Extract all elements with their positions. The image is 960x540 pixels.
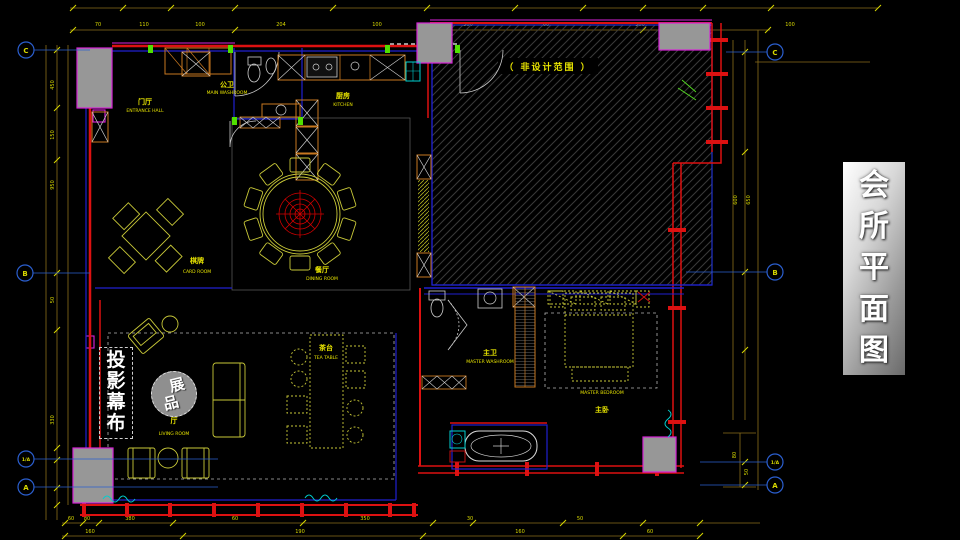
svg-text:50: 50 bbox=[577, 516, 583, 522]
label-card-zh: 棋牌 bbox=[190, 256, 204, 265]
plants bbox=[103, 410, 671, 502]
svg-text:80: 80 bbox=[732, 452, 738, 458]
banner-char: 所 bbox=[859, 208, 889, 246]
label-card-en: CARD ROOM bbox=[183, 269, 211, 275]
bathtub-room bbox=[450, 431, 537, 462]
svg-text:950: 950 bbox=[50, 180, 56, 190]
grid-marker-left-a: A bbox=[23, 484, 29, 492]
svg-text:160: 160 bbox=[85, 529, 95, 535]
label-tea-en: TEA TABLE bbox=[313, 355, 338, 361]
projection-char: 投 bbox=[106, 350, 125, 371]
grid-marker-right-c: C bbox=[772, 49, 777, 57]
svg-text:110: 110 bbox=[139, 22, 149, 28]
label-living-en: LIVING ROOM bbox=[159, 431, 190, 437]
non-design-label: （ 非设计范围 ） bbox=[504, 61, 591, 73]
svg-text:100: 100 bbox=[195, 22, 205, 28]
label-entrance-en: ENTRANCE HALL bbox=[126, 108, 164, 114]
svg-text:350: 350 bbox=[360, 516, 370, 522]
banner-char: 会 bbox=[859, 167, 889, 205]
exhibit-char: 品 bbox=[162, 393, 180, 412]
label-mainwash-en: MAIN WASHROOM bbox=[207, 90, 248, 96]
label-masterbed-en: MASTER BEDROOM bbox=[580, 390, 624, 396]
svg-text:150: 150 bbox=[50, 130, 56, 140]
svg-text:600: 600 bbox=[733, 195, 739, 205]
grid-marker-left-1a: 1/A bbox=[22, 457, 31, 463]
svg-text:70: 70 bbox=[95, 22, 101, 28]
svg-text:190: 190 bbox=[295, 529, 305, 535]
label-tea-zh: 茶台 bbox=[318, 343, 333, 352]
cad-floorplan-slide: 70 110 100 204 100 300 60 300 100 450 15… bbox=[0, 0, 960, 540]
svg-text:650: 650 bbox=[746, 195, 752, 205]
svg-text:450: 450 bbox=[50, 80, 56, 90]
svg-text:30: 30 bbox=[467, 516, 473, 522]
label-dining-en: DINING ROOM bbox=[306, 276, 338, 282]
label-entrance-zh: 门厅 bbox=[138, 97, 152, 106]
label-masterwash-en: MASTER WASHROOM bbox=[466, 359, 514, 365]
projection-char: 布 bbox=[106, 413, 125, 434]
svg-text:160: 160 bbox=[515, 529, 525, 535]
label-masterwash-zh: 主卫 bbox=[483, 348, 497, 357]
label-kitchen-zh: 厨房 bbox=[336, 91, 350, 100]
floor-plan-drawing: 70 110 100 204 100 300 60 300 100 450 15… bbox=[0, 0, 960, 540]
banner-char: 平 bbox=[859, 249, 889, 287]
card-table bbox=[91, 181, 204, 294]
dining-chandelier bbox=[276, 190, 324, 238]
svg-text:60: 60 bbox=[68, 516, 74, 522]
svg-text:100: 100 bbox=[785, 22, 795, 28]
label-masterbed-zh: 主卧 bbox=[595, 405, 609, 414]
grid-marker-right-1a: 1/A bbox=[771, 460, 780, 466]
grid-marker-right-b: B bbox=[772, 269, 777, 277]
label-kitchen-en: KITCHEN bbox=[333, 102, 353, 108]
banner-char: 图 bbox=[859, 332, 889, 370]
projection-char: 影 bbox=[106, 371, 125, 392]
svg-text:204: 204 bbox=[276, 22, 286, 28]
svg-text:60: 60 bbox=[647, 529, 653, 535]
banner-char: 面 bbox=[859, 291, 889, 329]
master-washroom-fixtures bbox=[422, 287, 535, 389]
svg-text:50: 50 bbox=[744, 469, 750, 475]
svg-text:60: 60 bbox=[232, 516, 238, 522]
label-living-zh: 厅 bbox=[171, 417, 178, 425]
grid-marker-left-b: B bbox=[22, 270, 27, 278]
projection-screen-label: 投 影 幕 布 bbox=[104, 350, 128, 434]
page-title-banner: 会 所 平 面 图 bbox=[843, 162, 905, 375]
projection-char: 幕 bbox=[106, 392, 125, 413]
svg-text:50: 50 bbox=[50, 297, 56, 303]
svg-text:330: 330 bbox=[50, 415, 56, 425]
grid-marker-right-a: A bbox=[772, 482, 778, 490]
bedroom-furniture bbox=[548, 291, 649, 381]
exhibit-char: 展 bbox=[168, 375, 186, 394]
svg-text:100: 100 bbox=[372, 22, 382, 28]
grid-marker-left-c: C bbox=[23, 47, 28, 55]
label-dining-zh: 餐厅 bbox=[314, 265, 329, 274]
label-mainwash-zh: 公卫 bbox=[220, 81, 234, 89]
